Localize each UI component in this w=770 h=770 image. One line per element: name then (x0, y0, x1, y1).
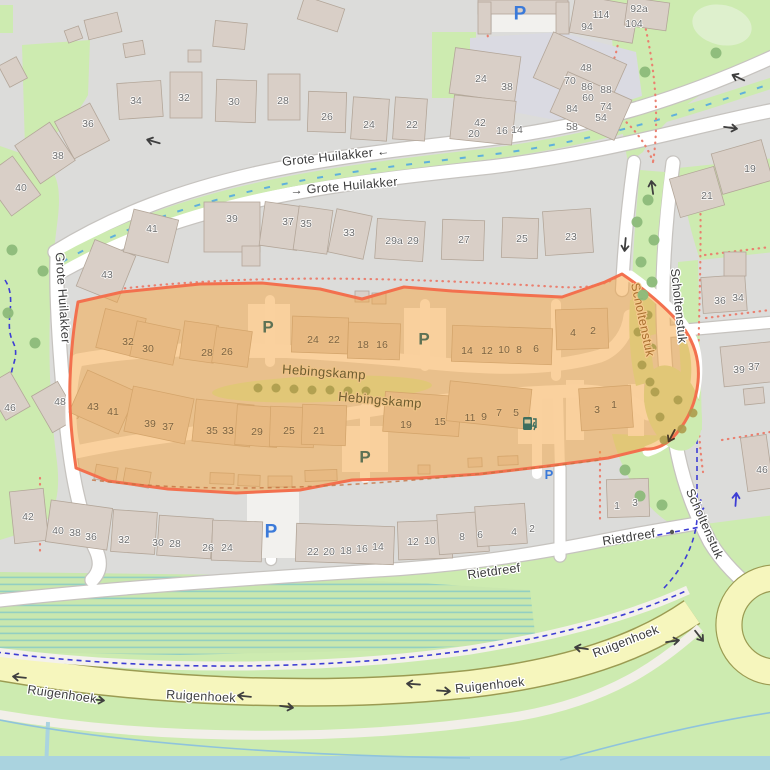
parking-icon-tinted: P (262, 317, 273, 336)
building (211, 520, 262, 562)
tree-icon-tinted (678, 425, 687, 434)
house-number-highlighted: 12 (481, 345, 493, 357)
house-number: 88 (600, 84, 612, 96)
house-number: 16 (356, 543, 368, 555)
house-number: 43 (101, 269, 113, 281)
building (724, 252, 746, 276)
house-number-highlighted: 30 (142, 343, 154, 355)
house-number: 24 (363, 119, 375, 131)
house-number: 8 (459, 531, 465, 543)
house-number-highlighted: 8 (516, 344, 522, 356)
house-number: 36 (85, 531, 97, 543)
house-number-highlighted: 5 (513, 407, 519, 419)
house-number: 37 (748, 361, 760, 373)
house-number: 48 (54, 396, 66, 408)
house-number: 26 (202, 542, 214, 554)
house-number: 26 (321, 111, 333, 123)
house-number-highlighted: 6 (533, 343, 539, 355)
tree-icon-tinted (272, 384, 281, 393)
house-number-highlighted: 41 (107, 406, 119, 418)
house-number: 12 (407, 536, 419, 548)
house-number: 23 (565, 231, 577, 243)
house-number-highlighted: 25 (283, 425, 295, 437)
building (242, 246, 260, 266)
house-number: 16 (496, 125, 508, 137)
tree-icon (38, 266, 49, 277)
house-number-highlighted: 3 (594, 404, 600, 416)
building (204, 202, 260, 252)
house-number-highlighted: 18 (357, 339, 369, 351)
house-number: 18 (340, 545, 352, 557)
tree-icon (3, 308, 14, 319)
house-number-highlighted: 24 (307, 334, 319, 346)
house-number-highlighted: 4 (570, 327, 576, 339)
house-number: 19 (744, 163, 756, 175)
ev-charging-icon (525, 420, 531, 424)
tree-icon (711, 48, 722, 59)
tree-icon (647, 277, 658, 288)
house-number: 20 (468, 128, 480, 140)
house-number: 58 (566, 121, 578, 133)
house-number: 20 (323, 546, 335, 558)
house-number-highlighted: 19 (400, 419, 412, 431)
house-number: 48 (580, 62, 592, 74)
house-number: 22 (307, 546, 319, 558)
parking-icon: P (514, 4, 527, 25)
tree-icon-tinted (326, 386, 335, 395)
house-number: 24 (221, 542, 233, 554)
building (556, 2, 569, 34)
building (213, 20, 248, 49)
tree-icon-tinted (308, 386, 317, 395)
house-number: 35 (300, 218, 312, 230)
tree-icon-tinted (656, 413, 665, 422)
house-number-highlighted: 15 (434, 416, 446, 428)
house-number: 34 (732, 292, 744, 304)
house-number: 28 (169, 538, 181, 550)
building (111, 510, 158, 555)
house-number: 38 (52, 150, 64, 162)
building (720, 341, 770, 387)
house-number-highlighted: 1 (611, 399, 617, 411)
house-number: 14 (372, 541, 384, 553)
house-number: 24 (475, 73, 487, 85)
house-number-highlighted: 22 (328, 334, 340, 346)
house-number-highlighted: 21 (313, 425, 325, 437)
house-number: 21 (701, 190, 713, 202)
tree-icon (649, 235, 660, 246)
tree-icon (640, 67, 651, 78)
house-number-highlighted: 32 (122, 336, 134, 348)
house-number: 28 (277, 95, 289, 107)
house-number: 25 (516, 233, 528, 245)
tree-icon (636, 257, 647, 268)
house-number: 46 (4, 402, 16, 414)
house-number-highlighted: 16 (376, 339, 388, 351)
tree-icon-tinted (660, 436, 669, 445)
house-number-highlighted: 9 (481, 411, 487, 423)
house-number: 114 (593, 9, 610, 21)
house-number: 14 (511, 124, 523, 136)
house-number: 40 (52, 525, 64, 537)
tree-icon-tinted (290, 385, 299, 394)
house-number-highlighted: 28 (201, 347, 213, 359)
house-number: 40 (15, 182, 27, 194)
building (188, 50, 201, 62)
house-number-highlighted: 10 (498, 344, 510, 356)
house-number: 54 (595, 112, 607, 124)
house-number: 46 (756, 464, 768, 476)
house-number: 30 (152, 537, 164, 549)
tree-icon (30, 338, 41, 349)
tree-icon-tinted (689, 409, 698, 418)
tree-icon-tinted (651, 388, 660, 397)
house-number-highlighted: 33 (222, 425, 234, 437)
parking-icon-tinted: P (359, 447, 370, 466)
house-number: 36 (714, 295, 726, 307)
house-number-highlighted: 2 (590, 325, 596, 337)
house-number: 33 (343, 227, 355, 239)
house-number: 1 (614, 500, 620, 512)
map-canvas[interactable]: PPP3230282624221816141210864243413937353… (0, 0, 770, 770)
tree-icon-tinted (646, 378, 655, 387)
house-number: 60 (582, 92, 594, 104)
house-number-highlighted: 43 (87, 401, 99, 413)
house-number-highlighted: 11 (465, 412, 476, 424)
house-number: 32 (178, 92, 190, 104)
building (743, 387, 765, 405)
house-number: 10 (424, 535, 436, 547)
house-number-highlighted: 26 (221, 346, 233, 358)
house-number: 38 (501, 81, 513, 93)
house-number-highlighted: 37 (162, 421, 174, 433)
house-number: 2 (529, 523, 535, 535)
house-number: 39 (226, 213, 238, 225)
house-number: 92a (630, 3, 648, 15)
house-number: 42 (22, 511, 34, 523)
house-number: 29 (407, 235, 419, 247)
tree-icon (7, 245, 18, 256)
tree-icon (643, 195, 654, 206)
house-number-highlighted: 39 (144, 418, 156, 430)
house-number: 32 (118, 534, 130, 546)
house-number: 37 (282, 216, 294, 228)
parking-icon: P (265, 522, 278, 543)
house-number-highlighted: 14 (461, 345, 473, 357)
house-number-highlighted: 35 (206, 425, 218, 437)
parking-icon-tinted: P (418, 329, 429, 348)
house-number: 22 (406, 119, 418, 131)
tree-icon (638, 290, 649, 301)
house-number: 4 (511, 526, 517, 538)
house-number: 3 (632, 497, 638, 509)
tree-icon-tinted (638, 361, 647, 370)
house-number-highlighted: 29 (251, 426, 263, 438)
house-number: 84 (566, 103, 578, 115)
house-number: 94 (581, 21, 593, 33)
tree-icon-tinted (254, 384, 263, 393)
ev-charging-icon (523, 417, 536, 430)
building (293, 206, 333, 254)
house-number: 38 (69, 527, 81, 539)
parking-icon: P (545, 467, 554, 482)
building (123, 40, 145, 57)
house-number: 70 (564, 75, 576, 87)
house-number: 41 (146, 223, 158, 235)
bollard-icon (670, 530, 674, 534)
tree-icon (620, 465, 631, 476)
house-number: 34 (130, 95, 142, 107)
house-number: 27 (458, 234, 470, 246)
tree-icon (657, 500, 668, 511)
house-number: 36 (82, 118, 94, 130)
house-number: 6 (477, 529, 483, 541)
tree-icon-tinted (674, 396, 683, 405)
building (478, 2, 491, 34)
house-number-highlighted: 7 (496, 407, 502, 419)
tree-icon (632, 217, 643, 228)
house-number: 39 (733, 364, 745, 376)
house-number: 104 (625, 18, 643, 30)
house-number: 30 (228, 96, 240, 108)
house-number: 29a (385, 235, 403, 247)
